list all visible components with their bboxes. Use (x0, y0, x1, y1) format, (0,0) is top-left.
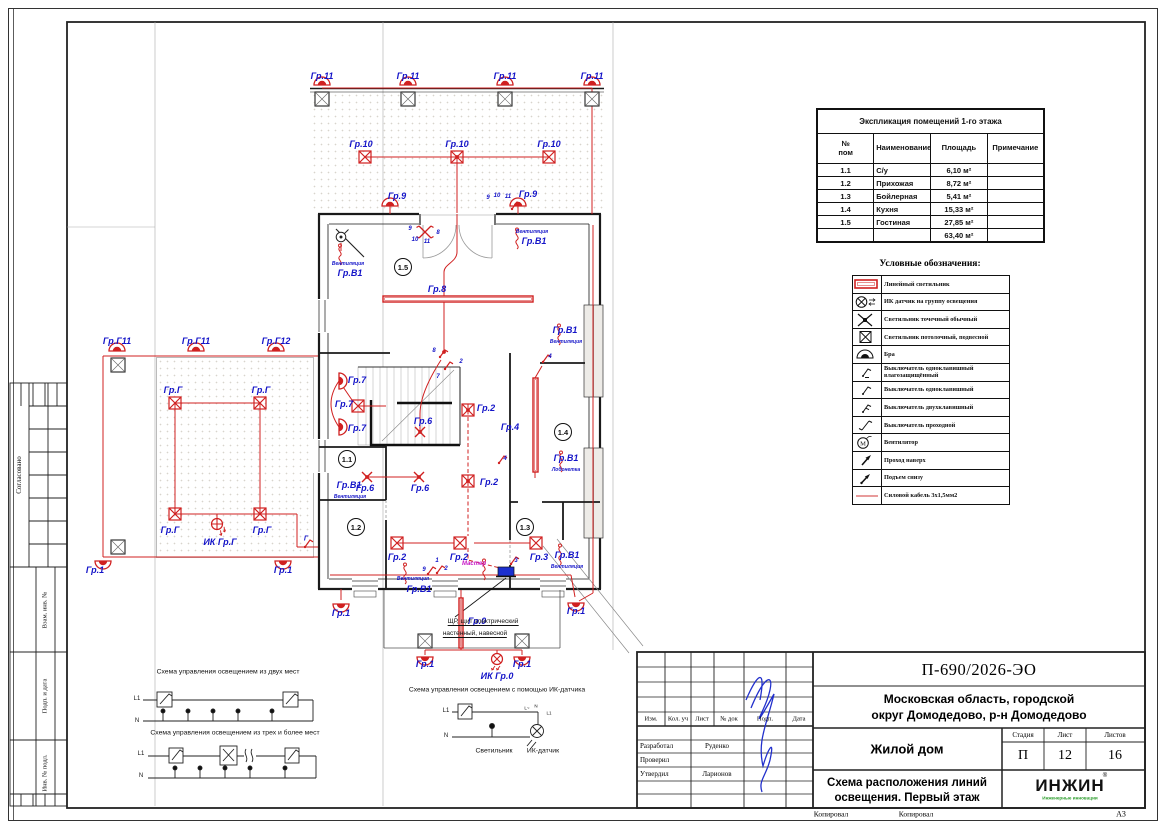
sconce-symbol (382, 198, 398, 206)
role-approved: Утвердил (640, 770, 669, 778)
sensor-terminal-label: L1 (546, 711, 551, 716)
cell-name: Прихожая (874, 177, 931, 190)
legend-row: Выключатель одноклавишный влагозащищённы… (853, 364, 1009, 382)
location-line1: Московская область, городской (884, 692, 1074, 706)
sconce-icon (853, 346, 882, 363)
table-title: Экспликация помещений 1-го этажа (817, 109, 1044, 134)
switch-symbol (439, 350, 448, 358)
legend-row: Выключатель одноклавишный (853, 382, 1009, 400)
legend-row: Проход наверх (853, 452, 1009, 470)
role-checked: Проверил (640, 756, 669, 764)
col-izm: Изм. (645, 716, 658, 723)
power-cable-icon (853, 487, 882, 504)
legend-box: Линейный светильник ИК датчик на группу … (852, 275, 1010, 505)
legend-label: Силовой кабель 3х1,5мм2 (882, 487, 1009, 504)
sheet-format-label: А3 (1116, 810, 1126, 819)
sconce-symbol (275, 561, 291, 569)
cell-area: 5,41 м² (931, 190, 988, 203)
col-kol: Кол. уч (668, 716, 688, 723)
sconce-symbol (400, 77, 416, 85)
column-symbol (498, 92, 512, 106)
legend-row: ИК датчик на группу освещения (853, 294, 1009, 312)
pendant-light-symbol (530, 537, 542, 549)
switch-waterproof-icon (853, 364, 882, 381)
cell-area: 63,40 м² (931, 229, 988, 243)
signature (746, 677, 774, 792)
column-symbol (401, 92, 415, 106)
table-row: 1.4Кухня15,33 м² (817, 203, 1044, 216)
cell-area: 27,85 м² (931, 216, 988, 229)
cell-note (987, 203, 1044, 216)
inv-podl-label: Инв. № подл. (42, 754, 49, 791)
legend-label: Выключатель одноклавишный (882, 382, 1009, 399)
schematic-two-places (143, 692, 313, 721)
legend-label: Бра (882, 346, 1009, 363)
table-title-row: Экспликация помещений 1-го этажа (817, 109, 1044, 134)
legend-row: Силовой кабель 3х1,5мм2 (853, 487, 1009, 504)
logo-subtitle: Инженерные инновации (1042, 796, 1097, 801)
legend-row: Подъем снизу (853, 470, 1009, 488)
legend-row: Выключатель двухклавишный (853, 399, 1009, 417)
sheet-title-line1: Схема расположения линий (827, 777, 987, 789)
legend-row: Бра (853, 346, 1009, 364)
sheets-header: Листов (1104, 731, 1125, 739)
sensor-terminal-label: L~ (524, 706, 529, 711)
sensor-label: ИК-датчик (527, 748, 559, 755)
switch-symbol (436, 566, 445, 574)
cell-name: С/у (874, 164, 931, 177)
sheet-title-line2: освещения. Первый этаж (834, 792, 979, 804)
stage-header: Стадия (1012, 731, 1033, 739)
wiring-lines (103, 88, 593, 655)
vent-point-symbol (558, 324, 561, 345)
sconce-symbol (314, 77, 330, 85)
cell-area: 8,72 м² (931, 177, 988, 190)
phase-label: L1 (134, 696, 141, 702)
cell-num: 1.5 (817, 216, 874, 229)
neutral-label: N (135, 718, 139, 724)
svg-text:M: M (860, 440, 866, 447)
left-stamp-grid (10, 383, 67, 806)
approver-name: Ларионов (702, 770, 731, 778)
stage-value: П (1018, 748, 1028, 764)
ir-sensor-icon (853, 294, 882, 311)
cell-num (817, 229, 874, 243)
vent-point-symbol (560, 451, 563, 472)
legend-row: Светильник потолочный, подвесной (853, 329, 1009, 347)
role-developed: Разработал (640, 742, 673, 750)
neutral-label: N (139, 773, 143, 779)
copied-label: Копировал (899, 810, 934, 819)
cell-num: 1.4 (817, 203, 874, 216)
legend-title: Условные обозначения: (879, 259, 980, 269)
col-data: Дата (793, 716, 806, 723)
cell-note (987, 229, 1044, 243)
legend-label: Выключатель одноклавишный влагозащищённы… (882, 364, 1009, 381)
col-header-area: Площадь (931, 134, 988, 164)
vent-point-symbol (404, 563, 407, 584)
table-row: 1.1С/у6,10 м² (817, 164, 1044, 177)
column-symbol (418, 634, 432, 648)
table-row: 1.2Прихожая8,72 м² (817, 177, 1044, 190)
sconce-symbol (339, 419, 347, 435)
linear-light-symbol (533, 378, 538, 472)
legend-label: ИК датчик на группу освещения (882, 294, 1009, 311)
pendant-light-symbol (454, 537, 466, 549)
legend-row: Выключатель проходной (853, 417, 1009, 435)
plan-symbols (95, 77, 600, 670)
company-logo: ИНЖИН (1035, 776, 1104, 796)
switch-one-key-icon (853, 382, 882, 399)
vent-point-symbol (516, 228, 519, 249)
ir-sensor-symbol (492, 654, 503, 671)
agreed-label: Согласовано (15, 456, 23, 493)
col-header-note: Примечание (987, 134, 1044, 164)
sconce-symbol (417, 657, 433, 665)
switch-two-key-icon (853, 399, 882, 416)
pendant-light-icon (853, 329, 882, 346)
cell-num: 1.1 (817, 164, 874, 177)
legend-row: Линейный светильник (853, 276, 1009, 294)
sconce-symbol (339, 373, 347, 389)
schematic-ir-title: Схема управления освещением с помощью ИК… (409, 687, 585, 694)
legend-label: Выключатель проходной (882, 417, 1009, 434)
cell-num: 1.2 (817, 177, 874, 190)
drawing-sheet: Гр.11Гр.11Гр.11Гр.11Гр.10Гр.10Гр.10Гр.9Г… (0, 0, 1166, 829)
cell-area: 15,33 м² (931, 203, 988, 216)
switch-symbol (510, 557, 519, 565)
cell-note (987, 190, 1044, 203)
lamp-label: Светильник (476, 748, 513, 755)
table-row: 1.5Гостиная27,85 м² (817, 216, 1044, 229)
schematic-ir-sensor (452, 704, 544, 748)
phase-label: L1 (138, 751, 145, 757)
neutral-label: N (444, 733, 448, 739)
legend-label: Подъем снизу (882, 470, 1009, 487)
vent-point-symbol (559, 544, 562, 565)
sconce-symbol (333, 604, 349, 612)
schematic-three-places-title: Схема управления освещением из трех и бо… (150, 730, 319, 737)
legend-label: Линейный светильник (882, 276, 1009, 293)
sheet-header: Лист (1058, 731, 1073, 739)
ir-sensor-symbol (209, 516, 228, 535)
sconce-symbol (568, 603, 584, 611)
legend-label: Вентилятор (882, 434, 1009, 451)
table-header-row: № пом Наименование Площадь Примечание (817, 134, 1044, 164)
legend-label: Светильник точечный обычный (882, 311, 1009, 328)
linear-light-symbol (383, 296, 533, 302)
legend-label: Выключатель двухклавишный (882, 399, 1009, 416)
spot-light-icon (853, 311, 882, 328)
column-symbol (315, 92, 329, 106)
cell-note (987, 164, 1044, 177)
vent-point-symbol (483, 559, 486, 580)
location-line2: округ Домодедово, р-н Домодедово (871, 708, 1086, 722)
cell-note (987, 177, 1044, 190)
switch-symbol (498, 456, 507, 464)
linear-light-icon (853, 276, 882, 293)
table-row: 1.3Бойлерная5,41 м² (817, 190, 1044, 203)
room-explication-table: Экспликация помещений 1-го этажа № пом Н… (816, 108, 1045, 243)
fan-icon: M (853, 434, 882, 451)
panel-note-line1: ЩР, щит электрический (448, 618, 519, 626)
schematic-three-places (148, 746, 316, 778)
sconce-symbol (95, 561, 111, 569)
col-header-name: Наименование (874, 134, 931, 164)
col-header-num: № пом (817, 134, 874, 164)
sconce-symbol (584, 77, 600, 85)
col-podp: Подп. (757, 716, 773, 723)
electrical-panel-symbol (496, 567, 516, 577)
schematic-two-places-title: Схема управления освещением из двух мест (157, 669, 300, 676)
cross-switch-symbol (417, 226, 434, 238)
doc-number: П-690/2026-ЭО (922, 660, 1037, 680)
rise-from-below-icon (853, 470, 882, 487)
column-symbol (515, 634, 529, 648)
developer-name: Руденко (705, 742, 729, 750)
sconce-symbol (497, 77, 513, 85)
column-symbol (111, 358, 125, 372)
col-doc: № док (720, 716, 738, 723)
switch-pass-through-icon (853, 417, 882, 434)
col-list: Лист (695, 716, 709, 723)
sconce-symbol (514, 657, 530, 665)
copied-label: Копировал (814, 810, 849, 819)
legend-label: Светильник потолочный, подвесной (882, 329, 1009, 346)
phase-label: L1 (443, 708, 450, 714)
podp-data-label: Подп. и дата (42, 679, 49, 714)
logo-registered-icon: ® (1103, 773, 1107, 779)
panel-note-line2: настенный, навесной (443, 630, 507, 638)
sconce-symbol (268, 343, 284, 351)
switch-symbol (427, 567, 436, 575)
sconce-symbol (109, 343, 125, 351)
sconce-symbol (188, 343, 204, 351)
column-symbol (585, 92, 599, 106)
legend-row: Светильник точечный обычный (853, 311, 1009, 329)
passage-up-icon (853, 452, 882, 469)
table-row-total: 63,40 м² (817, 229, 1044, 243)
legend-row: MВентилятор (853, 434, 1009, 452)
cell-num: 1.3 (817, 190, 874, 203)
cell-name: Гостиная (874, 216, 931, 229)
switch-symbol (542, 355, 551, 363)
cell-area: 6,10 м² (931, 164, 988, 177)
sheets-total: 16 (1108, 748, 1122, 764)
column-symbol (111, 540, 125, 554)
cell-name (874, 229, 931, 243)
sensor-terminal-label: N (534, 704, 537, 709)
cell-note (987, 216, 1044, 229)
object-name: Жилой дом (870, 742, 943, 757)
cell-name: Кухня (874, 203, 931, 216)
vzam-inv-label: Взам. инв. № (42, 592, 49, 629)
legend-label: Проход наверх (882, 452, 1009, 469)
sheet-number: 12 (1058, 748, 1072, 764)
cell-name: Бойлерная (874, 190, 931, 203)
